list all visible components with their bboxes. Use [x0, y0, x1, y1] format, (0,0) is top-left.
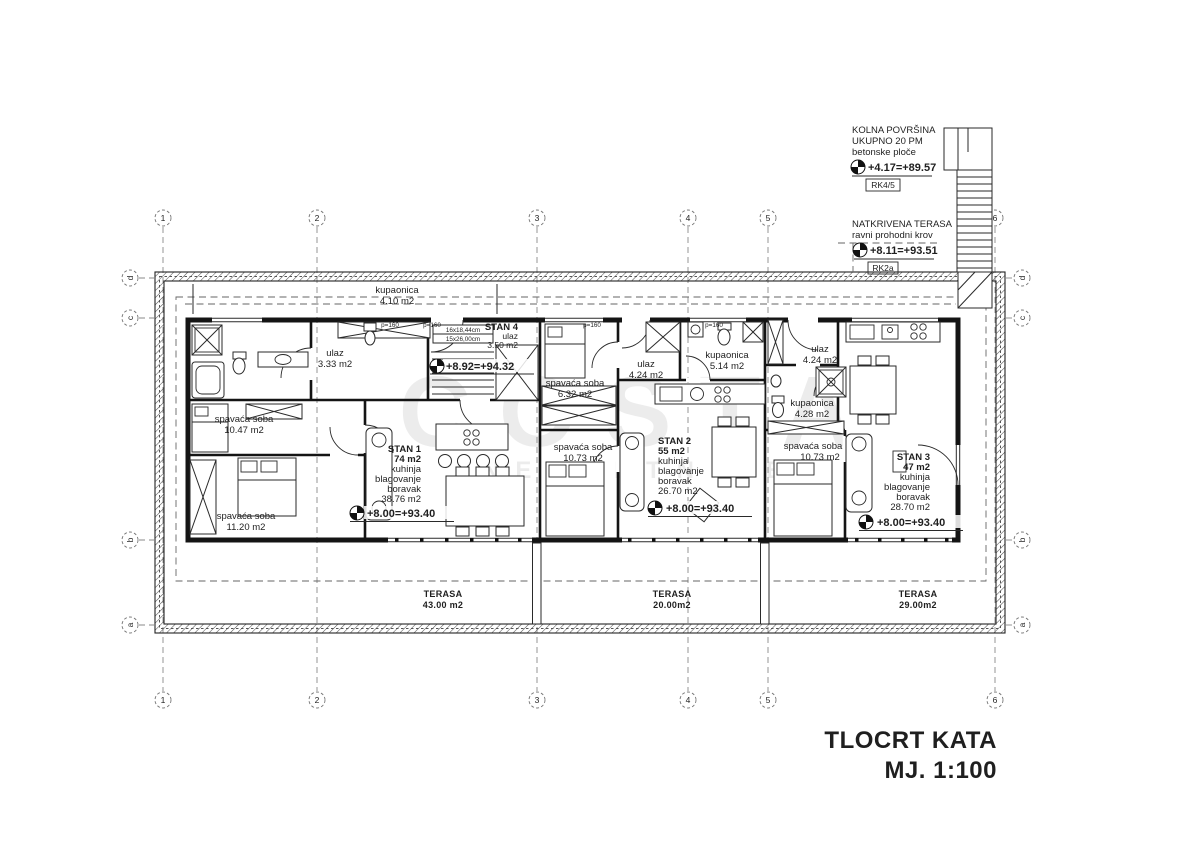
grid-col-6: 6 [993, 213, 998, 223]
room-spavaca-s3-name: spavaća soba [784, 441, 843, 452]
drawing-scale: MJ. 1:100 [884, 757, 997, 784]
natkrivena-line2: ravni prohodni krov [852, 230, 933, 241]
floor-plan-page: COSTA NEKRETNINE 1 2 3 4 5 6 1 2 3 4 5 6… [0, 0, 1200, 848]
natkrivena-tag: RK2a [872, 263, 894, 273]
terrace2-area: 20.00m2 [653, 600, 691, 610]
grid-col-4b: 4 [686, 695, 691, 705]
kolna-tag: RK4/5 [871, 180, 895, 190]
p160-label-3: p=160 [583, 322, 601, 329]
p160-label-4: p=160 [705, 322, 723, 329]
room-spavaca-s1a-area: 10.47 m2 [224, 425, 264, 436]
benchmark-stan4: +8.92=+94.32 [430, 359, 537, 374]
room-kupaonica-s2-area: 5.14 m2 [710, 361, 744, 372]
grid-row-d: d [125, 275, 135, 280]
title-block: TLOCRT KATA MJ. 1:100 [824, 727, 997, 784]
room-spavaca-s2b-area: 10.73 m2 [563, 453, 603, 464]
drawing-title: TLOCRT KATA [824, 727, 997, 754]
stan1-l4: 38.76 m2 [381, 494, 421, 505]
grid-col-6b: 6 [993, 695, 998, 705]
grid-row-b-right: b [1017, 537, 1027, 542]
grid-col-5b: 5 [766, 695, 771, 705]
room-spavaca-s1b-name: spavaća soba [217, 511, 276, 522]
p160-label-1: p=160 [381, 322, 399, 329]
room-spavaca-s2a-name: spavaća soba [546, 378, 605, 389]
stair-dim-1: 16x18,44cm [446, 327, 480, 334]
grid-col-2: 2 [315, 213, 320, 223]
grid-row-a: a [125, 622, 135, 627]
stan1-elevation: +8.00=+93.40 [367, 508, 435, 520]
stan3-elevation: +8.00=+93.40 [877, 517, 945, 529]
stan4-elevation: +8.92=+94.32 [446, 361, 514, 373]
stan2-elevation: +8.00=+93.40 [666, 503, 734, 515]
room-kupaonica-s3-name: kupaonica [790, 398, 834, 409]
room-ulaz-s3-area: 4.24 m2 [803, 355, 837, 366]
kolna-line2: UKUPNO 20 PM [852, 136, 923, 147]
room-ulaz-s2-area: 4.24 m2 [629, 370, 663, 381]
grid-column-markers-bottom: 1 2 3 4 5 6 [155, 692, 1003, 708]
room-ulaz-s1-area: 3.33 m2 [318, 359, 352, 370]
stan4-area: 3.50 m2 [487, 340, 518, 350]
grid-col-4: 4 [686, 213, 691, 223]
room-spavaca-s1a-name: spavaća soba [215, 414, 274, 425]
stan2-l4: 26.70 m2 [658, 486, 698, 497]
grid-col-3b: 3 [535, 695, 540, 705]
stan3-label-block: STAN 3 47 m2 kuhinja blagovanje boravak … [884, 452, 931, 513]
stan3-l4: 28.70 m2 [890, 502, 930, 513]
room-spavaca-s3-area: 10.73 m2 [800, 452, 840, 463]
terrace1-area: 43.00 m2 [423, 600, 463, 610]
terrace1-name: TERASA [424, 589, 463, 599]
terrace-labels: TERASA 43.00 m2 TERASA 20.00m2 TERASA 29… [423, 589, 938, 610]
grid-col-3: 3 [535, 213, 540, 223]
terrace3-area: 29.00m2 [899, 600, 937, 610]
grid-row-b: b [125, 537, 135, 542]
floor-plan-drawing: COSTA NEKRETNINE 1 2 3 4 5 6 1 2 3 4 5 6… [0, 0, 1200, 848]
room-kupaonica-s3-area: 4.28 m2 [795, 409, 829, 420]
natkrivena-line1: NATKRIVENA TERASA [852, 219, 953, 230]
kolna-elevation: +4.17=+89.57 [868, 162, 936, 174]
kolna-line1: KOLNA POVRŠINA [852, 125, 936, 136]
room-spavaca-s2a-area: 6.32 m2 [558, 389, 592, 400]
natkrivena-elevation: +8.11=+93.51 [870, 245, 938, 257]
room-ulaz-s3-name: ulaz [811, 344, 829, 355]
benchmark-stan3: +8.00=+93.40 [859, 515, 966, 531]
room-ulaz-s2-name: ulaz [637, 359, 655, 370]
stair-dim-2: 15x26,00cm [446, 336, 480, 343]
room-ulaz-s1-name: ulaz [326, 348, 344, 359]
grid-col-2b: 2 [315, 695, 320, 705]
benchmark-stan2: +8.00=+93.40 [648, 501, 755, 517]
grid-row-a-right: a [1017, 622, 1027, 627]
terrace-dividers [533, 543, 770, 624]
grid-col-1b: 1 [161, 695, 166, 705]
room-kupaonica-top-area: 4.10 m2 [380, 296, 414, 307]
grid-col-1: 1 [161, 213, 166, 223]
room-kupaonica-top-name: kupaonica [375, 285, 419, 296]
room-kupaonica-s2-name: kupaonica [705, 350, 749, 361]
room-spavaca-s2b-name: spavaća soba [554, 442, 613, 453]
terrace2-name: TERASA [653, 589, 692, 599]
room-spavaca-s1b-area: 11.20 m2 [227, 522, 266, 533]
terrace3-name: TERASA [899, 589, 938, 599]
annotation-kolna: KOLNA POVRŠINA UKUPNO 20 PM betonske plo… [851, 125, 936, 191]
annotation-natkrivena: NATKRIVENA TERASA ravni prohodni krov +8… [838, 219, 953, 274]
grid-col-5: 5 [766, 213, 771, 223]
p160-label-2: p=160 [423, 322, 441, 329]
grid-row-d-right: d [1017, 275, 1027, 280]
kolna-line3: betonske ploče [852, 147, 916, 158]
